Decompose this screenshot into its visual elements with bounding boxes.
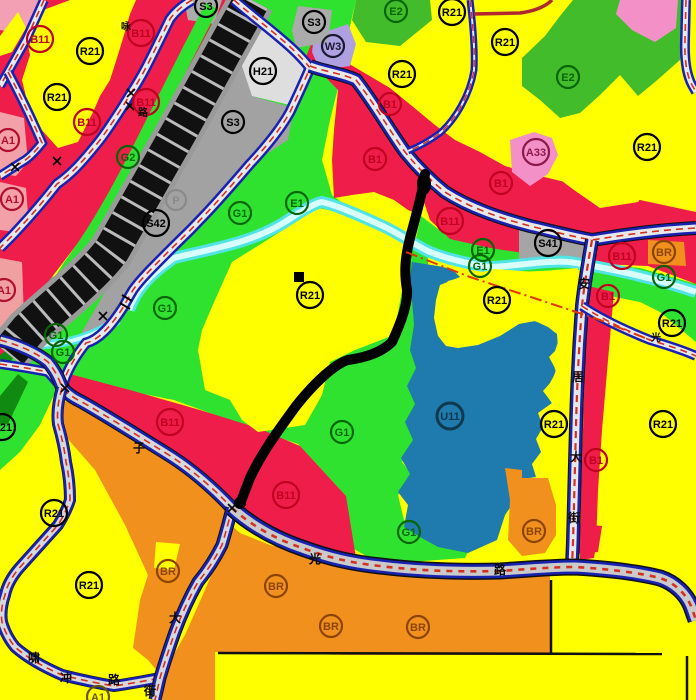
svg-text:A1: A1 xyxy=(1,135,15,147)
svg-text:BR: BR xyxy=(323,621,339,633)
svg-text:B11: B11 xyxy=(77,117,97,129)
svg-text:R21: R21 xyxy=(80,46,100,58)
svg-text:B11: B11 xyxy=(30,34,50,46)
svg-text:大: 大 xyxy=(169,610,181,625)
svg-text:子: 子 xyxy=(133,441,145,455)
svg-text:B1: B1 xyxy=(494,178,508,190)
svg-text:P: P xyxy=(172,195,179,207)
svg-text:G1: G1 xyxy=(335,427,350,439)
svg-text:R21: R21 xyxy=(300,290,320,302)
svg-text:A1: A1 xyxy=(0,285,11,297)
svg-text:G2: G2 xyxy=(121,152,136,164)
svg-text:B1: B1 xyxy=(368,154,382,166)
svg-text:B1: B1 xyxy=(589,455,603,467)
svg-text:W3: W3 xyxy=(325,41,342,53)
svg-text:BR: BR xyxy=(410,622,426,634)
svg-text:G1: G1 xyxy=(56,347,71,359)
svg-text:B11: B11 xyxy=(131,28,151,40)
svg-text:H21: H21 xyxy=(253,66,273,78)
svg-text:B11: B11 xyxy=(160,417,180,429)
svg-text:G1: G1 xyxy=(233,208,248,220)
svg-text:R21: R21 xyxy=(487,295,507,307)
svg-text:光: 光 xyxy=(308,551,321,566)
svg-text:冲: 冲 xyxy=(60,670,72,685)
svg-text:R21: R21 xyxy=(495,37,515,49)
svg-text:R21: R21 xyxy=(544,419,564,431)
svg-text:BR: BR xyxy=(656,247,672,259)
svg-text:B1: B1 xyxy=(383,99,397,111)
svg-text:S41: S41 xyxy=(538,238,558,250)
svg-text:街: 街 xyxy=(143,683,156,698)
svg-text:路: 路 xyxy=(138,106,149,119)
svg-text:B1: B1 xyxy=(601,291,615,303)
svg-text:A1: A1 xyxy=(5,194,19,206)
svg-text:E1: E1 xyxy=(476,245,489,257)
svg-text:E2: E2 xyxy=(561,72,574,84)
svg-text:啸: 啸 xyxy=(28,650,40,665)
svg-text:咏: 咏 xyxy=(121,20,132,33)
svg-text:路: 路 xyxy=(494,562,507,577)
svg-text:B11: B11 xyxy=(440,216,460,228)
svg-text:光: 光 xyxy=(650,331,661,344)
svg-text:BR: BR xyxy=(526,526,542,538)
svg-text:S3: S3 xyxy=(226,117,239,129)
svg-text:R21: R21 xyxy=(392,69,412,81)
svg-text:R21: R21 xyxy=(79,580,99,592)
svg-text:街: 街 xyxy=(567,510,580,525)
svg-text:B11: B11 xyxy=(276,490,296,502)
svg-text:A1: A1 xyxy=(91,692,105,700)
svg-text:R21: R21 xyxy=(47,92,67,104)
svg-text:U11: U11 xyxy=(440,411,460,423)
svg-text:S42: S42 xyxy=(146,218,166,230)
svg-text:S3: S3 xyxy=(199,1,212,13)
svg-text:E1: E1 xyxy=(290,198,303,210)
svg-text:B11: B11 xyxy=(612,251,632,263)
svg-text:安: 安 xyxy=(578,276,590,291)
svg-text:居: 居 xyxy=(572,370,584,384)
svg-text:R21: R21 xyxy=(637,142,657,154)
svg-text:A33: A33 xyxy=(526,147,546,159)
svg-text:G1: G1 xyxy=(402,527,417,539)
svg-text:R21: R21 xyxy=(653,419,673,431)
svg-text:BR: BR xyxy=(268,581,284,593)
svg-text:R21: R21 xyxy=(442,7,462,19)
svg-text:G1: G1 xyxy=(158,303,173,315)
svg-text:BR: BR xyxy=(160,566,176,578)
svg-text:S3: S3 xyxy=(307,17,320,29)
svg-text:大: 大 xyxy=(570,449,582,464)
svg-text:R21: R21 xyxy=(0,422,12,434)
svg-text:R21: R21 xyxy=(662,318,682,330)
svg-text:R21: R21 xyxy=(44,508,64,520)
svg-text:路: 路 xyxy=(108,672,121,687)
svg-text:E2: E2 xyxy=(389,6,402,18)
svg-text:G1: G1 xyxy=(473,261,488,273)
svg-text:G1: G1 xyxy=(657,272,672,284)
